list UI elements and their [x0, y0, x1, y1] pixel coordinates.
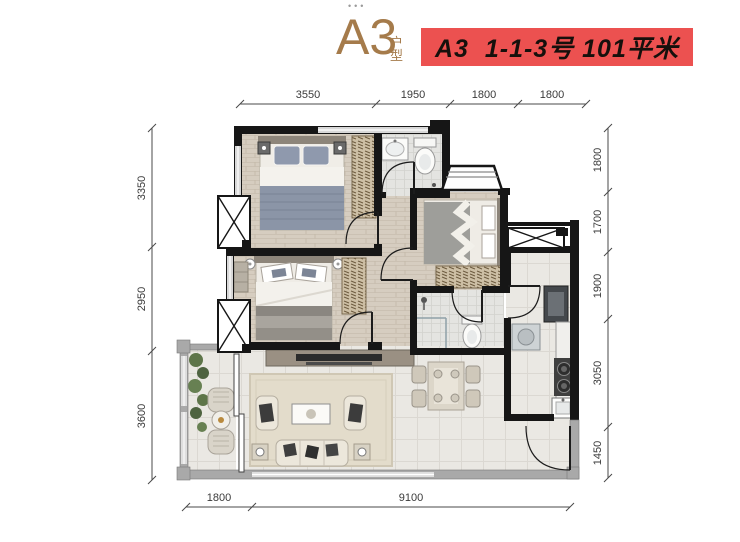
bedroom2-dresser	[234, 262, 248, 292]
dim-top-3: 1800	[472, 89, 496, 101]
bedroom3-wardrobe	[436, 266, 502, 288]
kitchen-washer	[512, 324, 540, 350]
dim-left-3: 3600	[136, 404, 148, 428]
bedroom3-bed	[424, 198, 505, 266]
dim-right-2: 1700	[592, 210, 604, 234]
bathroom2-floor	[414, 290, 504, 352]
balcony-chair-bottom	[208, 430, 234, 454]
balcony-table	[212, 411, 230, 429]
dim-right-5: 1450	[592, 441, 604, 465]
bathroom1-toilet	[414, 138, 436, 174]
floorplan-drawing: 3550 1950 1800 1800 3350 2950 3600 1800 …	[0, 0, 740, 542]
window-bedroom2-left	[227, 256, 233, 306]
dim-top-4: 1800	[540, 89, 564, 101]
armchair-right	[344, 396, 366, 430]
armchair-left	[256, 396, 278, 430]
dim-bottom-1: 1800	[207, 492, 231, 504]
window-bay-bedroom3	[442, 166, 502, 190]
floorplan-page: ••• A3 户 型 A3 1-1-3号 101平米	[0, 0, 740, 542]
dim-right-1: 1800	[592, 148, 604, 172]
bedroom2-bed	[245, 256, 343, 340]
side-table-right	[354, 444, 370, 460]
sofa	[276, 440, 348, 466]
shaft-left-upper	[218, 196, 250, 248]
dining-table	[428, 362, 464, 410]
side-table-left	[252, 444, 268, 460]
coffee-table	[292, 404, 330, 424]
dim-left-2: 2950	[136, 287, 148, 311]
dim-top-1: 3550	[296, 89, 320, 101]
dim-right-3: 1900	[592, 274, 604, 298]
dim-bottom-2: 9100	[399, 492, 423, 504]
dim-top-2: 1950	[401, 89, 425, 101]
dim-left-1: 3350	[136, 176, 148, 200]
entry-floor	[506, 420, 572, 474]
bathroom1-sink	[382, 138, 408, 160]
kitchen-fridge	[544, 286, 568, 322]
shaft-left-lower	[218, 300, 250, 352]
bedroom2-wardrobe	[342, 258, 366, 314]
master-bed	[258, 136, 346, 230]
master-wardrobe	[352, 136, 376, 218]
window-top	[318, 127, 428, 133]
balcony-chair-top	[208, 388, 234, 412]
tv-cabinet	[266, 350, 414, 366]
dim-right-4: 3050	[592, 361, 604, 385]
window-south	[252, 472, 434, 477]
bathroom1-floor-drain	[432, 183, 436, 187]
shaft-right	[508, 228, 568, 248]
